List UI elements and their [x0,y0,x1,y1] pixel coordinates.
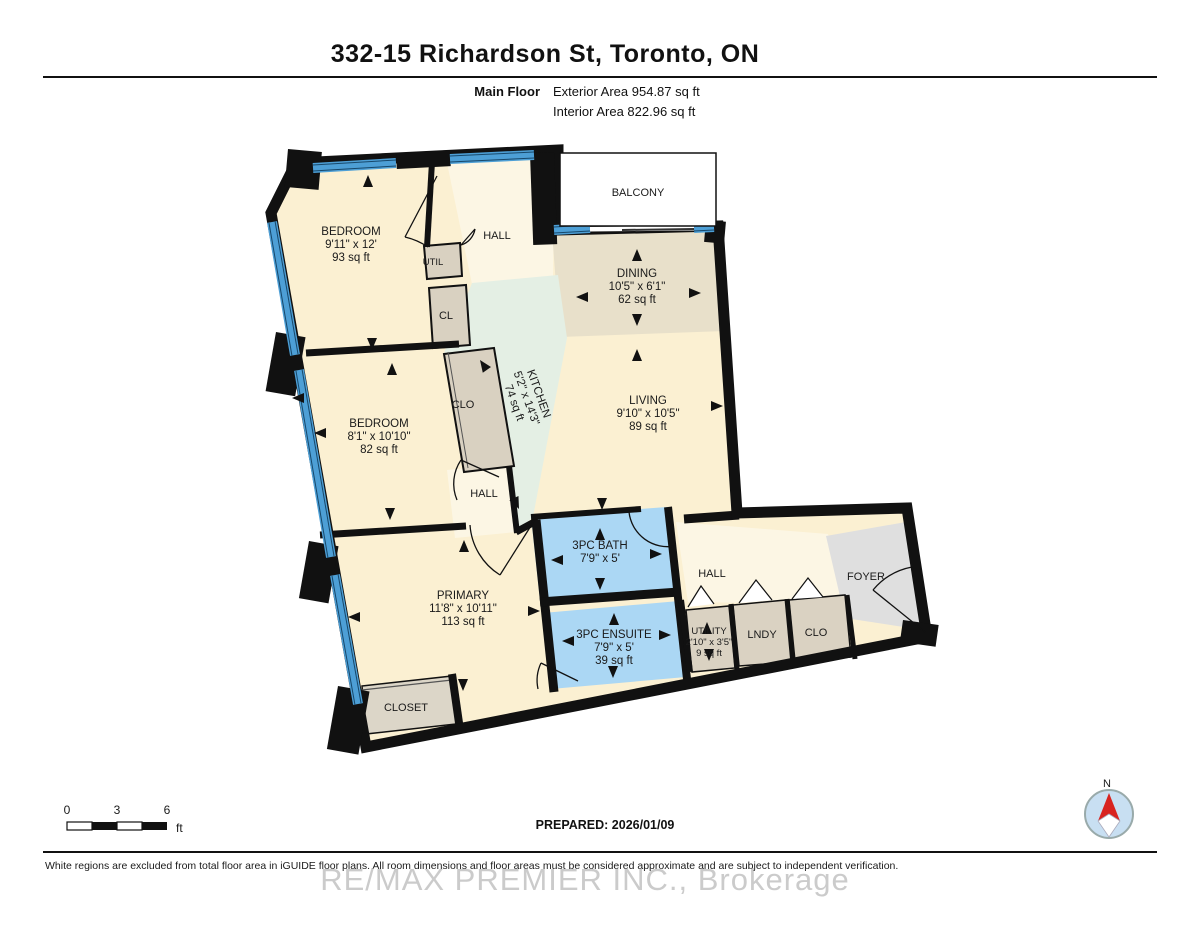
svg-text:BEDROOM: BEDROOM [321,226,380,238]
label-clo-kitchen: CLO [452,399,475,411]
balcony-label: BALCONY [612,187,665,199]
svg-text:11'8" x 10'11": 11'8" x 10'11" [429,603,497,615]
scale-unit: ft [176,821,183,835]
svg-text:UTILITY: UTILITY [691,626,727,637]
label-util: UTIL [423,257,444,268]
scale-bar: 0 3 6 ft [64,803,184,835]
scale-tick-3: 3 [114,803,121,817]
label-lndy: LNDY [747,629,777,641]
svg-text:DINING: DINING [617,268,657,280]
svg-text:LIVING: LIVING [629,395,667,407]
svg-text:2'10" x 3'5": 2'10" x 3'5" [686,637,733,648]
svg-text:3PC BATH: 3PC BATH [572,540,627,552]
svg-text:9 sq ft: 9 sq ft [696,648,722,659]
label-hall-lower: HALL [698,568,726,580]
svg-text:89 sq ft: 89 sq ft [629,421,668,433]
label-closet-primary: CLOSET [384,702,428,714]
svg-text:62 sq ft: 62 sq ft [618,294,657,306]
scale-tick-0: 0 [64,803,71,817]
svg-text:3PC ENSUITE: 3PC ENSUITE [576,629,652,641]
svg-text:10'5" x 6'1": 10'5" x 6'1" [609,281,666,293]
floor-plan-page: 332-15 Richardson St, Toronto, ON Main F… [0,0,1200,927]
label-hall-top: HALL [483,230,511,242]
svg-text:PRIMARY: PRIMARY [437,590,490,602]
brokerage-watermark: RE/MAX PREMIER INC., Brokerage [0,862,1170,898]
balcony: BALCONY [560,153,716,226]
compass-north-label: N [1103,778,1111,790]
label-clo-lower: CLO [805,627,828,639]
label-hall-mid: HALL [470,488,498,500]
footer-divider [43,851,1157,853]
svg-text:7'9" x 5': 7'9" x 5' [594,642,634,654]
label-cl: CL [439,310,453,322]
floor-plan-drawing: BALCONY [0,0,1200,927]
svg-text:82 sq ft: 82 sq ft [360,444,399,456]
svg-text:9'11" x 12': 9'11" x 12' [325,239,377,251]
svg-text:8'1" x 10'10": 8'1" x 10'10" [347,431,410,443]
svg-text:93 sq ft: 93 sq ft [332,252,371,264]
label-foyer: FOYER [847,571,885,583]
prepared-date: PREPARED: 2026/01/09 [455,818,755,832]
svg-text:9'10" x 10'5": 9'10" x 10'5" [616,408,679,420]
label-bath: 3PC BATH 7'9" x 5' [572,540,627,565]
svg-text:BEDROOM: BEDROOM [349,418,408,430]
svg-text:113 sq ft: 113 sq ft [441,616,485,628]
svg-text:39 sq ft: 39 sq ft [595,655,634,667]
svg-text:7'9" x 5': 7'9" x 5' [580,553,620,565]
compass-icon: N [1085,778,1133,838]
scale-tick-6: 6 [164,803,171,817]
